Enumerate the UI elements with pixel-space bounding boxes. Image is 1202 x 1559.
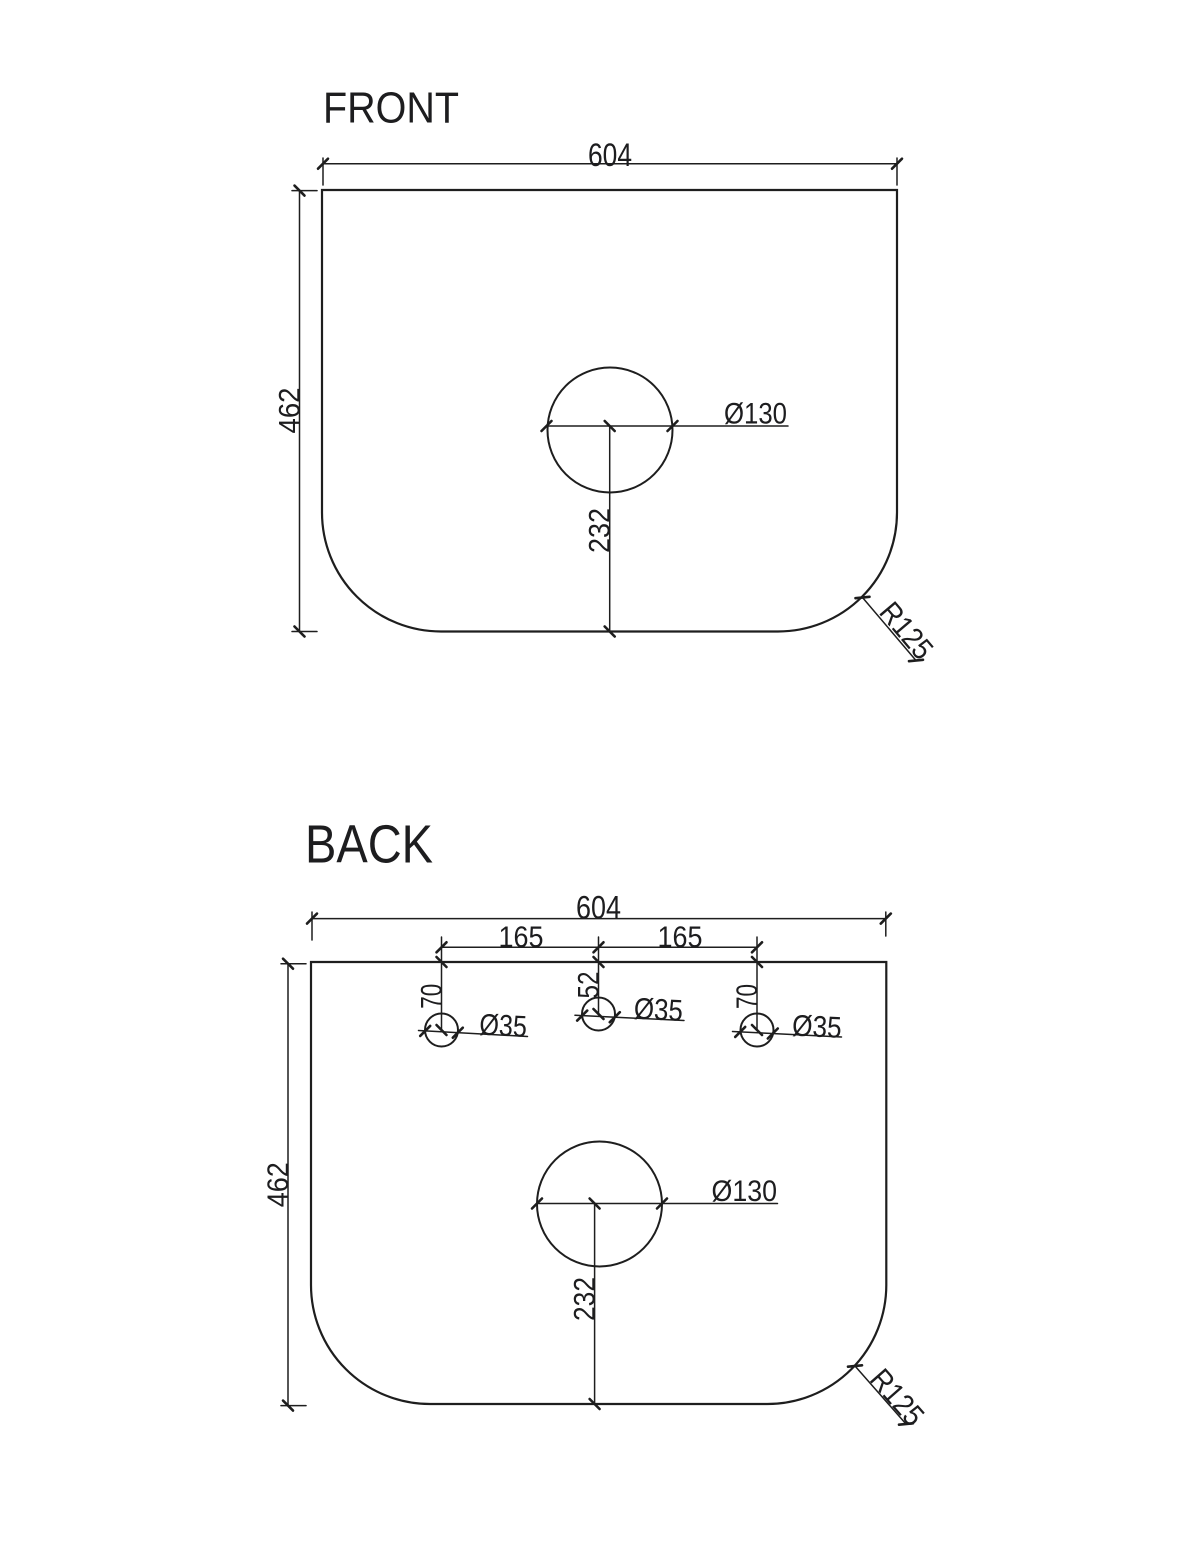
svg-text:165: 165 — [499, 921, 544, 954]
svg-text:604: 604 — [588, 137, 632, 173]
svg-text:R125: R125 — [873, 596, 940, 666]
svg-text:70: 70 — [416, 984, 449, 1009]
svg-text:604: 604 — [576, 889, 621, 925]
svg-text:Ø35: Ø35 — [791, 1010, 842, 1045]
svg-text:165: 165 — [658, 921, 703, 954]
svg-text:Ø130: Ø130 — [712, 1175, 778, 1208]
svg-text:232: 232 — [569, 1277, 602, 1321]
svg-text:52: 52 — [573, 972, 606, 999]
svg-text:70: 70 — [731, 984, 764, 1009]
svg-text:BACK: BACK — [305, 814, 433, 874]
svg-text:R125: R125 — [863, 1363, 930, 1433]
svg-text:Ø35: Ø35 — [633, 993, 684, 1028]
svg-text:FRONT: FRONT — [323, 83, 459, 132]
svg-text:Ø35: Ø35 — [479, 1009, 528, 1044]
svg-text:Ø130: Ø130 — [724, 398, 787, 431]
svg-text:462: 462 — [262, 1162, 295, 1207]
svg-text:232: 232 — [584, 508, 617, 553]
svg-text:462: 462 — [274, 388, 307, 434]
